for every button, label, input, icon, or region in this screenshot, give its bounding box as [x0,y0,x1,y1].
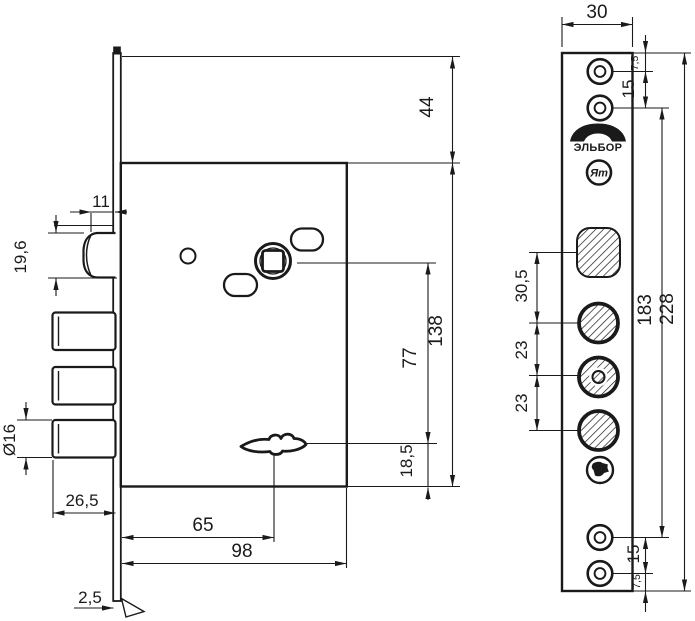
dim-label-top-to-body: 44 [417,96,438,118]
dim-plate-thickness: 2,5 [74,588,144,617]
dim-keyhole-to-bottom: 18,5 [397,444,428,501]
dim-plate-width: 30 [562,2,633,47]
plate-thickness-arrow [122,599,145,618]
dim-bottom-screw-edge: 7,5 [631,574,646,613]
dim-label-screw-span: 183 [635,294,656,326]
dim-label-bolt-pitch-1: 23 [512,341,531,360]
dim-label-keyhole-backset: 65 [192,515,213,536]
dim-label-body-width: 98 [231,541,252,562]
dim-body-height: 138 [348,163,460,487]
dim-bolt-pitch-1: 23 [512,323,537,376]
dim-label-bolt-length: 26,5 [65,491,98,510]
front-view: ЭЛЬБОР Ят [562,53,633,591]
logo-text: ЭЛЬБОР [574,142,623,154]
lock-body [121,163,347,487]
bolt-hole-3 [579,411,618,450]
dim-label-keyhole-to-bottom: 18,5 [397,444,416,477]
dim-label-plate-width: 30 [586,2,607,23]
dim-plate-height: 228 [657,53,685,591]
deadbolt-2 [53,367,116,405]
dim-bolt-length: 26,5 [53,460,116,518]
latch-opening [577,228,620,277]
dim-label-plate-height: 228 [657,293,678,325]
dim-label-spindle-to-keyhole: 77 [400,347,421,368]
dim-label-top-screw-edge: 7,5 [629,56,641,71]
technical-drawing-page: 11 19,6 Ø16 26,5 65 [0,0,695,621]
bolt-hole-2 [579,358,618,397]
dim-label-top-screw-pitch: 15 [619,80,638,99]
dim-label-bolt-pitch-2: 23 [512,394,531,413]
bolt-hole-1 [579,304,618,343]
dim-label-bottom-screw-edge: 7,5 [631,574,643,589]
dim-label-latch-protrusion: 11 [92,192,110,211]
dim-top-to-body: 44 [122,57,460,164]
cert-mark-text: Ят [589,168,608,180]
dim-label-plate-thickness: 2,5 [78,588,102,607]
dim-label-latch-height: 19,6 [11,240,30,273]
deadbolt-1 [53,313,116,351]
dim-bolt-diameter: Ø16 [0,402,52,475]
dim-label-bottom-screw-pitch: 15 [624,545,643,564]
dim-label-bolt-diameter: Ø16 [0,424,19,456]
dim-label-latch-to-bolt1: 30,5 [512,269,531,302]
deadbolt-3 [53,420,116,458]
lock-dimension-drawing: 11 19,6 Ø16 26,5 65 [0,0,695,621]
faceplate-top-cap [113,47,121,55]
dim-bolt-pitch-2: 23 [512,376,537,431]
dim-label-body-height: 138 [426,315,447,347]
dim-latch-to-bolt1: 30,5 [512,253,537,324]
dim-body-width: 98 [122,488,347,568]
